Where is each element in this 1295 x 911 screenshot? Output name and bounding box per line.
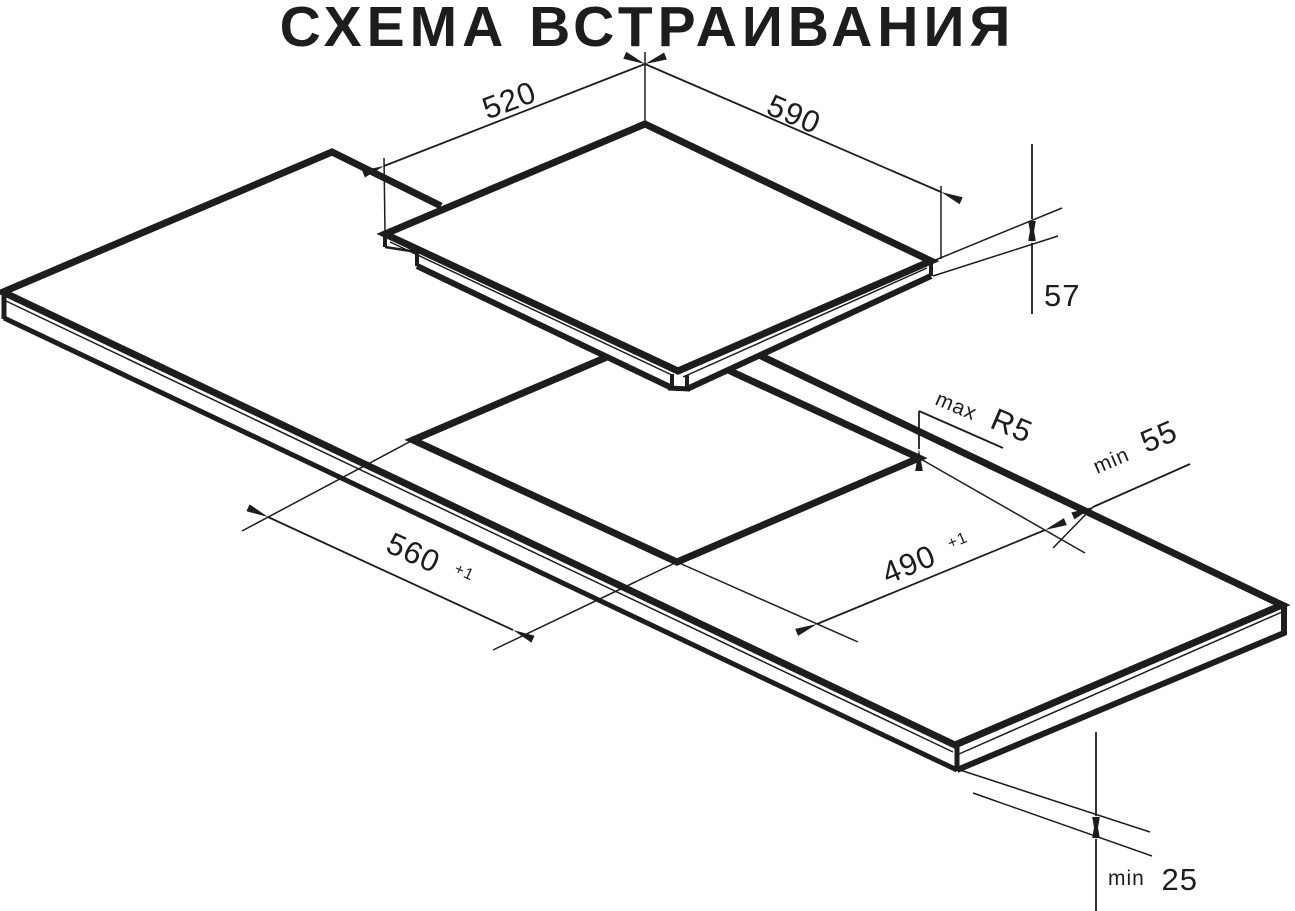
dimension-value: 25 (1161, 862, 1197, 897)
extension-line (493, 562, 677, 650)
worktop-front-bottom-edge (4, 318, 957, 770)
extension-line (960, 770, 1150, 832)
worktop-front-face-radius-line (6, 301, 953, 752)
extension-line (1053, 507, 1093, 548)
dimension-cutout-length-560: 560 +1 (242, 440, 677, 650)
dimension-prefix: min (1108, 867, 1145, 890)
cooktop-base-lower-right-edge (687, 276, 931, 389)
dimension-label: 490 +1 (877, 524, 975, 591)
cooktop-glass-outline (385, 124, 931, 371)
extension-line (933, 208, 1062, 261)
dimension-prefix: min (1090, 443, 1133, 479)
dimension-tolerance: +1 (945, 529, 970, 552)
cooktop-glass-underside-right (683, 268, 927, 377)
dimension-hob-width-590: 590 (645, 64, 941, 259)
dimension-value: 560 (381, 526, 445, 581)
extension-line (384, 158, 385, 231)
installation-diagram: 520 590 57 max R5 (0, 0, 1295, 911)
dimension-value: 490 (877, 538, 941, 591)
dimension-label: 520 (478, 74, 542, 126)
dimension-value: 520 (478, 74, 542, 126)
dimension-label: min 55 (1086, 413, 1182, 480)
dimension-tolerance: +1 (451, 561, 476, 585)
dimension-label: 590 (762, 88, 826, 142)
cooktop-base-lower-left-edge (417, 266, 672, 388)
dimension-value: 590 (762, 88, 826, 142)
dimension-label: min 25 (1108, 857, 1198, 897)
extension-line (933, 236, 1058, 276)
dimension-line (268, 517, 513, 630)
cooktop-glass-underside-left (390, 242, 674, 376)
extension-line (677, 562, 858, 642)
cooktop-base-box-bottom-edge (668, 388, 690, 389)
dimension-value: 57 (1044, 278, 1080, 313)
dimension-worktop-thickness-25: min 25 (960, 732, 1198, 911)
dimension-hob-height-57: 57 (933, 144, 1080, 314)
dimension-label: 57 (1044, 278, 1080, 313)
dimension-value: 55 (1135, 413, 1182, 459)
dimension-cutout-depth-490: 490 +1 (677, 458, 1085, 642)
worktop-top-face-outline (3, 152, 1282, 745)
cooktop (385, 124, 931, 389)
worktop-end-face-radius-line (959, 612, 1282, 754)
dimension-value: R5 (986, 401, 1038, 449)
